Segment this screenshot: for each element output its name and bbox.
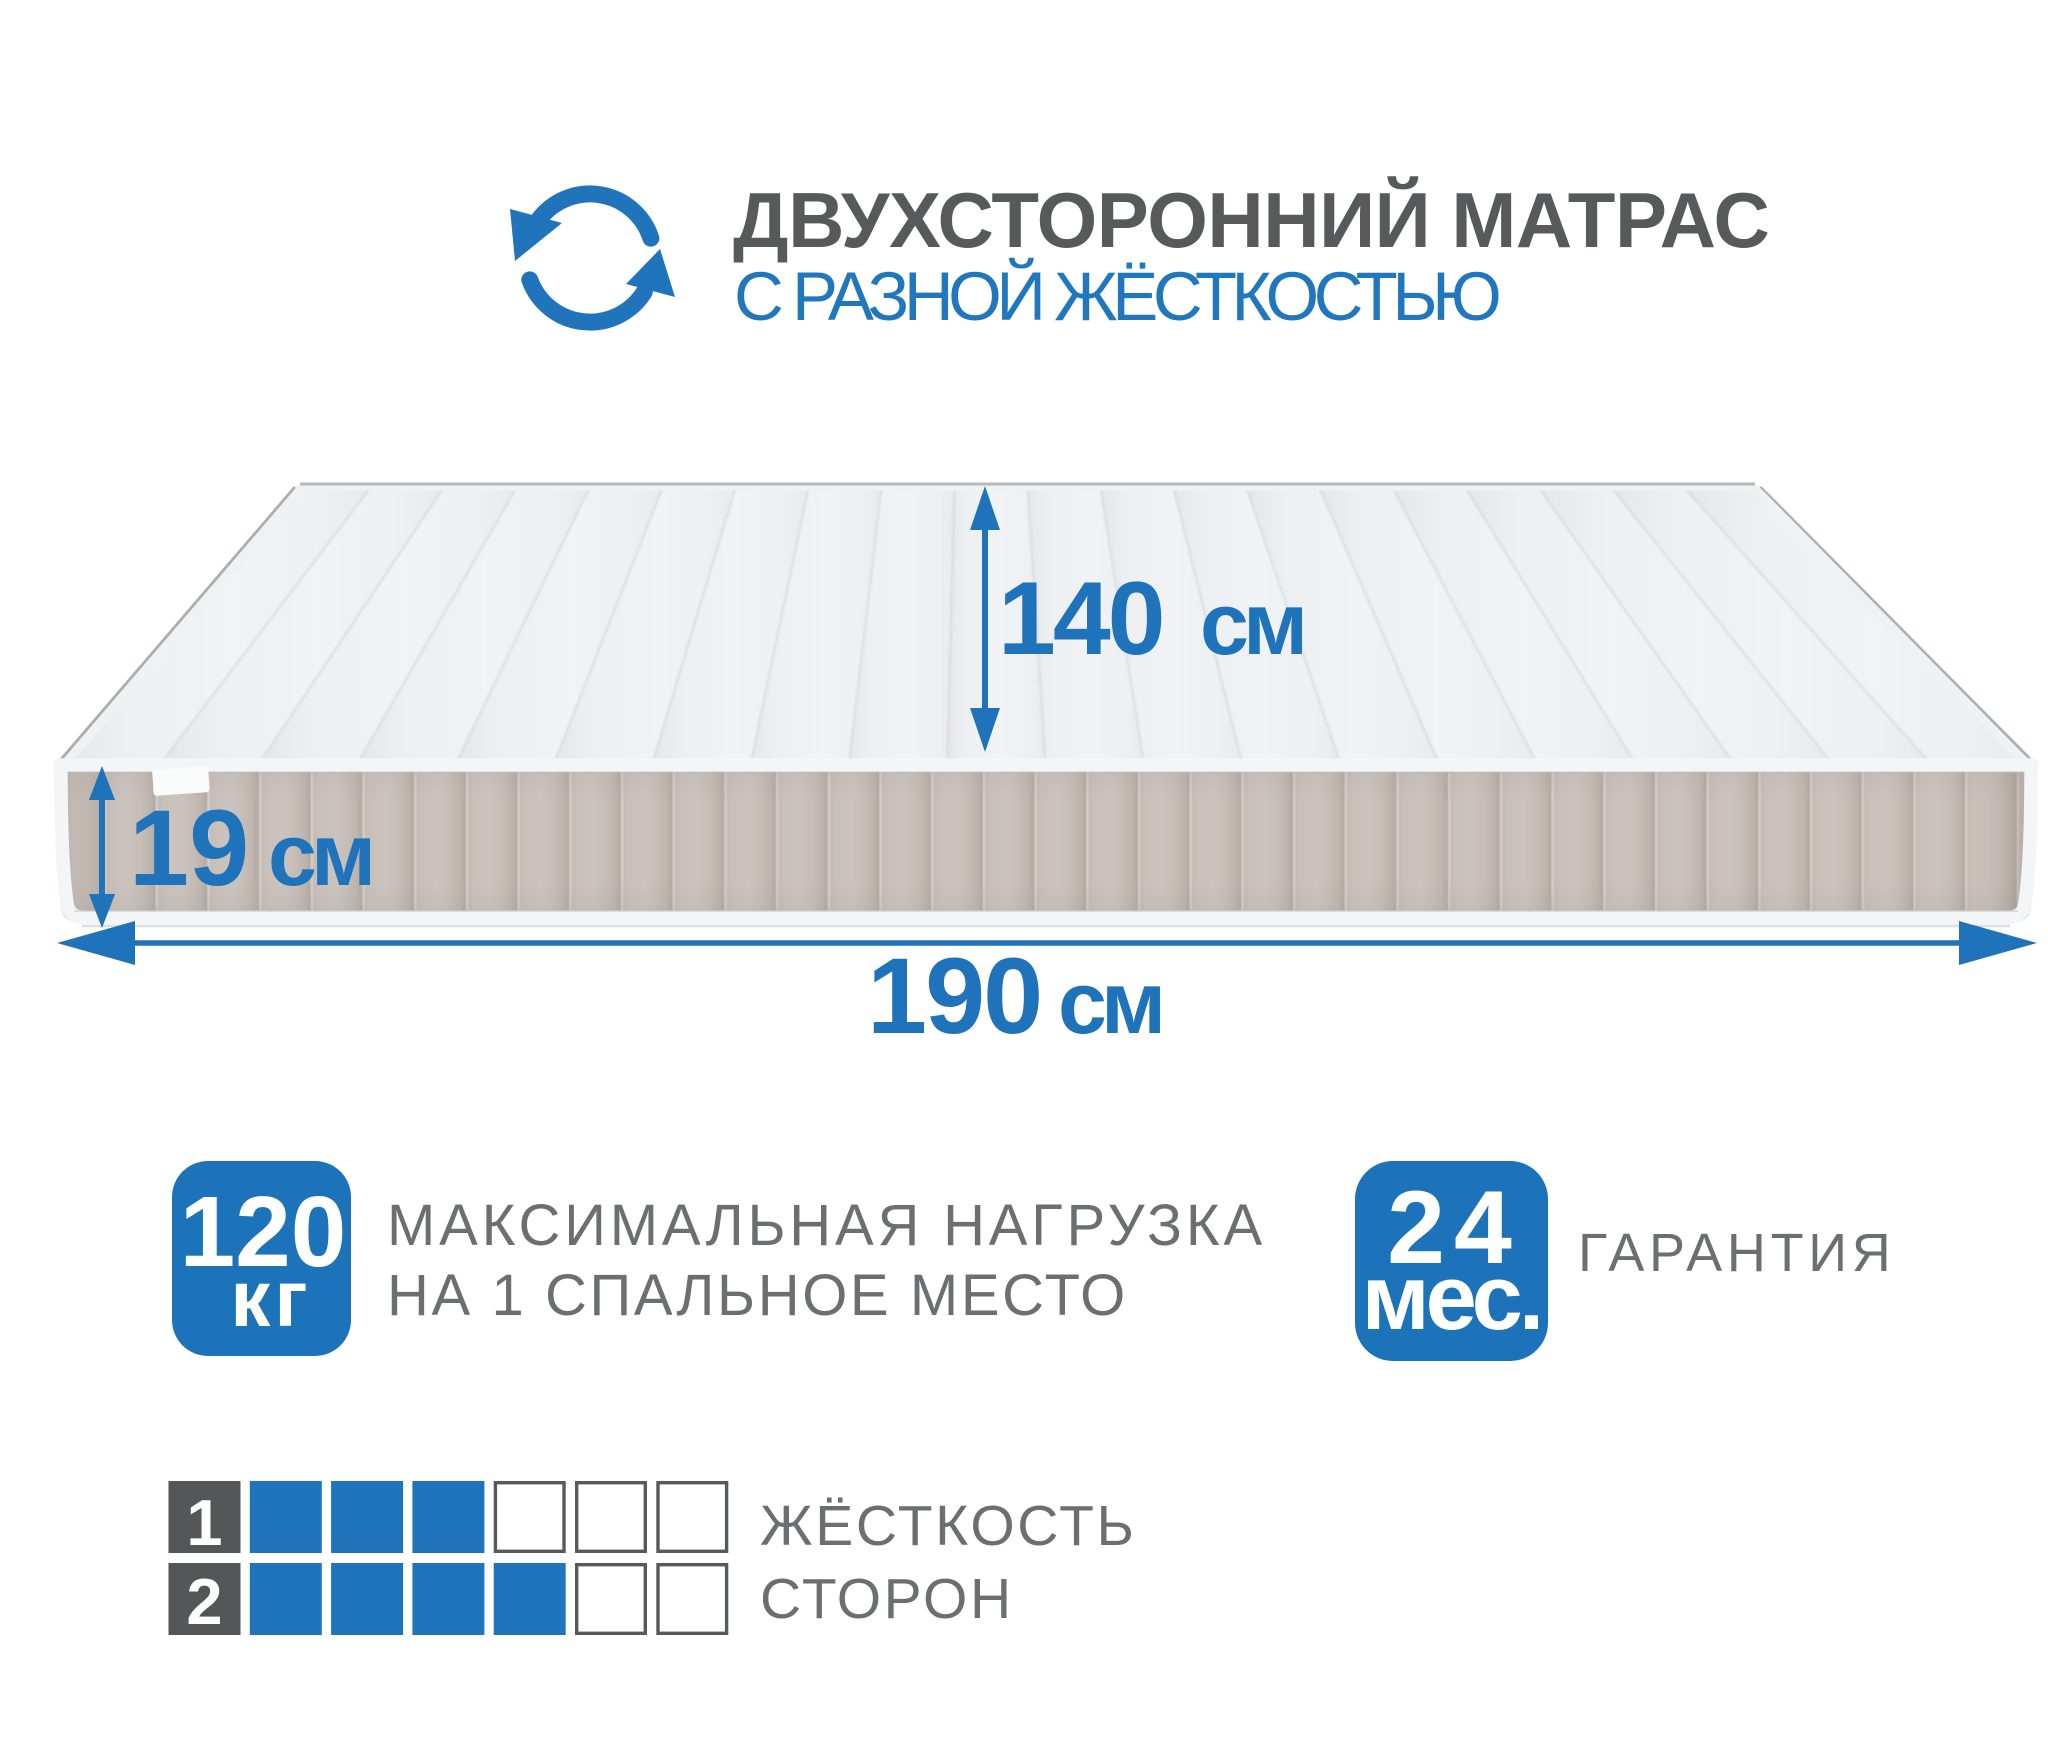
svg-text:190: 190	[867, 935, 1041, 1056]
svg-text:1: 1	[186, 1486, 222, 1559]
svg-text:см: см	[1058, 953, 1160, 1052]
svg-text:С РАЗНОЙ ЖЁСТКОСТЬЮ: С РАЗНОЙ ЖЁСТКОСТЬЮ	[734, 258, 1499, 335]
svg-text:см: см	[1200, 574, 1302, 673]
svg-text:2: 2	[186, 1565, 222, 1638]
svg-text:мес.: мес.	[1362, 1247, 1541, 1349]
svg-text:ГАРАНТИЯ: ГАРАНТИЯ	[1578, 1223, 1895, 1283]
svg-text:ЖЁСТКОСТЬ: ЖЁСТКОСТЬ	[760, 1494, 1137, 1558]
svg-text:140: 140	[998, 561, 1163, 677]
svg-text:МАКСИМАЛЬНАЯ НАГРУЗКА: МАКСИМАЛЬНАЯ НАГРУЗКА	[387, 1193, 1266, 1258]
svg-text:ДВУХСТОРОННИЙ МАТРАС: ДВУХСТОРОННИЙ МАТРАС	[733, 176, 1769, 264]
svg-text:19: 19	[129, 787, 249, 908]
svg-text:СТОРОН: СТОРОН	[760, 1567, 1014, 1631]
svg-text:см: см	[268, 805, 370, 904]
svg-text:кг: кг	[230, 1254, 311, 1343]
svg-text:НА 1 СПАЛЬНОЕ МЕСТО: НА 1 СПАЛЬНОЕ МЕСТО	[387, 1263, 1128, 1328]
